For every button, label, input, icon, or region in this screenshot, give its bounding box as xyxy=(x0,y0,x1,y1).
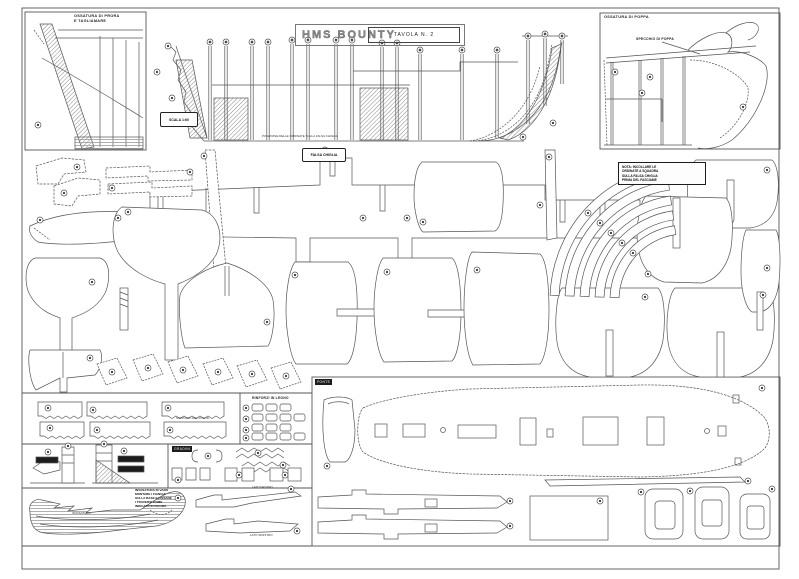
stern-inner-label: SPECCHIO DI POPPA xyxy=(636,37,674,41)
bow-panel-label-2: E TAGLIAMARE xyxy=(74,19,106,24)
stern-detail-drawing xyxy=(604,22,767,148)
deck-part xyxy=(358,385,770,477)
plate-number-box: TAVOLA N. 2 xyxy=(368,27,460,43)
bow-panel-label-1: OSSATURA DI PRORA xyxy=(74,14,120,19)
small-parts-label: GRADINI xyxy=(172,446,192,452)
keel-stick-part xyxy=(545,150,557,240)
fittings-heading: RINFORZI IN LEGNO xyxy=(252,396,289,400)
hull-baseline-note: POSIZIONE DELLE ORDINATE SULLA FALSA CHI… xyxy=(262,135,338,139)
transom-part xyxy=(323,397,355,462)
plan-drawing xyxy=(0,0,799,579)
stern-panel-label: OSSATURA DI POPPA xyxy=(604,15,649,20)
plan-sheet: HMS BOUNTY TAVOLA N. 2 OSSATURA DI PRORA… xyxy=(0,0,799,579)
wale-label-bottom: LATO SINISTRO xyxy=(250,534,273,538)
diamond-parts xyxy=(97,354,301,389)
deck-battens xyxy=(318,477,770,540)
scale-label-box: SCALA 1:60 xyxy=(160,112,198,127)
fitting-parts xyxy=(252,404,305,440)
note-box: NOTA: INCOLLARE LE ORDINATE A SQUADRA SU… xyxy=(618,162,706,185)
hull-profile-drawing xyxy=(168,36,568,141)
keel-label-box: FALSA CHIGLIA xyxy=(302,148,346,162)
cradle-caption: INVASATURA xyxy=(72,512,91,516)
small-stick-part xyxy=(120,288,128,330)
wale-label-top: LATO DESTRO xyxy=(252,486,273,490)
note-line: PRIMA DEL FASCIAME xyxy=(622,178,702,182)
deck-panel-label: PONTE xyxy=(315,379,332,385)
bow-detail-drawing xyxy=(34,24,143,149)
strips-label: SUPPORTI DEL PONTE xyxy=(176,417,209,421)
cradle-note: INVASATURA DI VARO MONTARE I FIANCHI SUL… xyxy=(135,488,205,508)
wale-strips xyxy=(196,492,301,533)
